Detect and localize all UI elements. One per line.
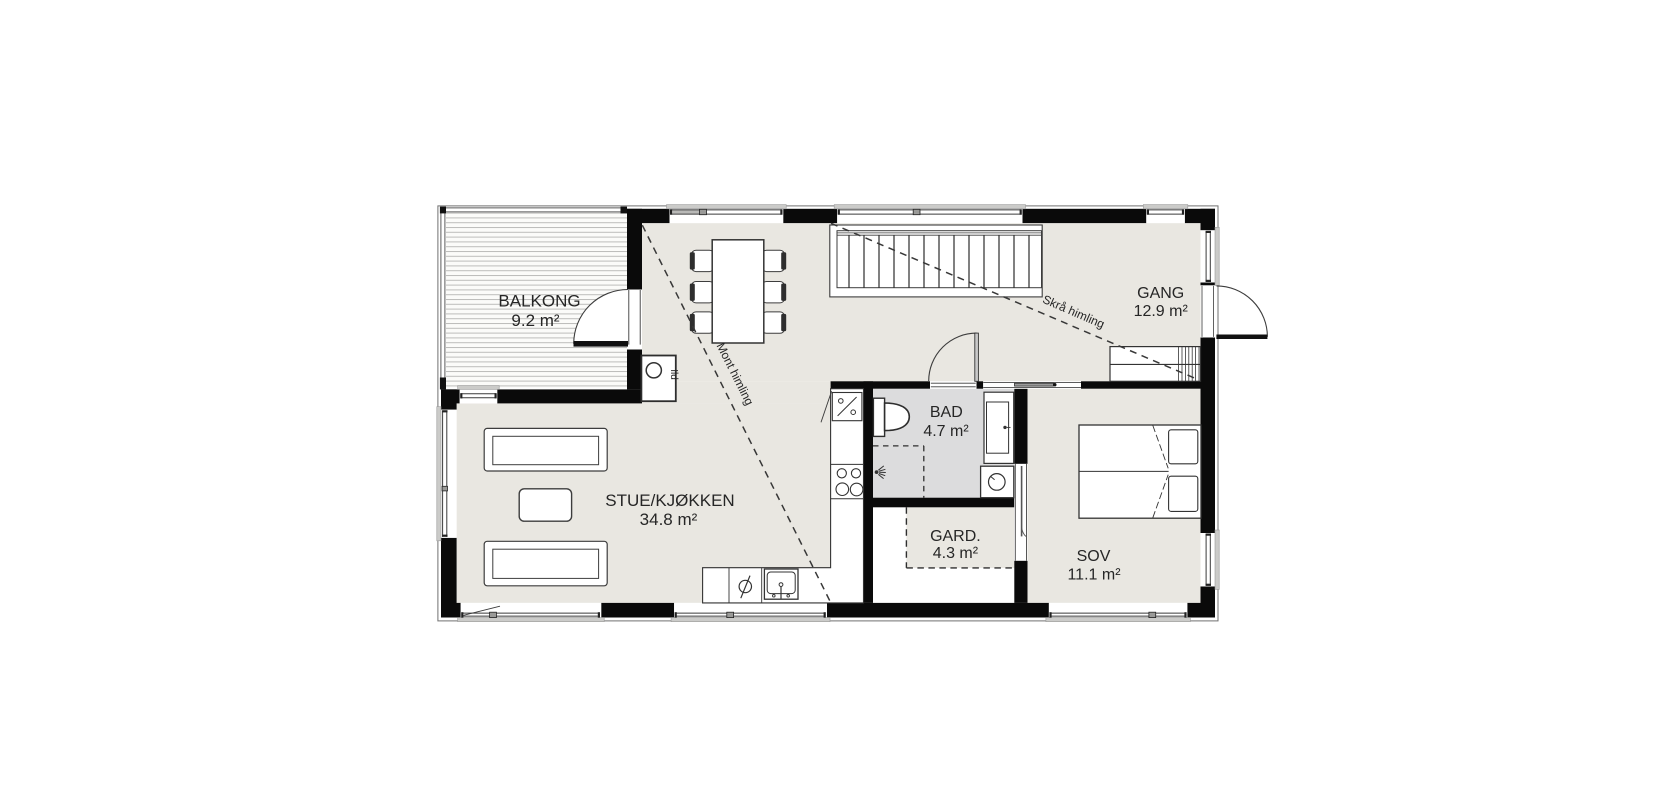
svg-text:4.7 m²: 4.7 m² [923, 423, 969, 440]
svg-text:BAD: BAD [930, 404, 963, 421]
svg-text:34.8 m²: 34.8 m² [640, 510, 698, 529]
svg-text:STUE/KJØKKEN: STUE/KJØKKEN [605, 491, 734, 510]
svg-text:GARD.: GARD. [930, 528, 981, 545]
svg-text:Ild: Ild [668, 369, 679, 380]
svg-text:GANG: GANG [1137, 285, 1184, 302]
svg-text:12.9 m²: 12.9 m² [1134, 303, 1189, 320]
svg-text:4.3 m²: 4.3 m² [933, 545, 979, 562]
svg-text:9.2 m²: 9.2 m² [511, 311, 560, 330]
svg-text:BALKONG: BALKONG [498, 292, 580, 311]
svg-text:SOV: SOV [1077, 548, 1111, 565]
svg-text:11.1 m²: 11.1 m² [1067, 566, 1121, 583]
